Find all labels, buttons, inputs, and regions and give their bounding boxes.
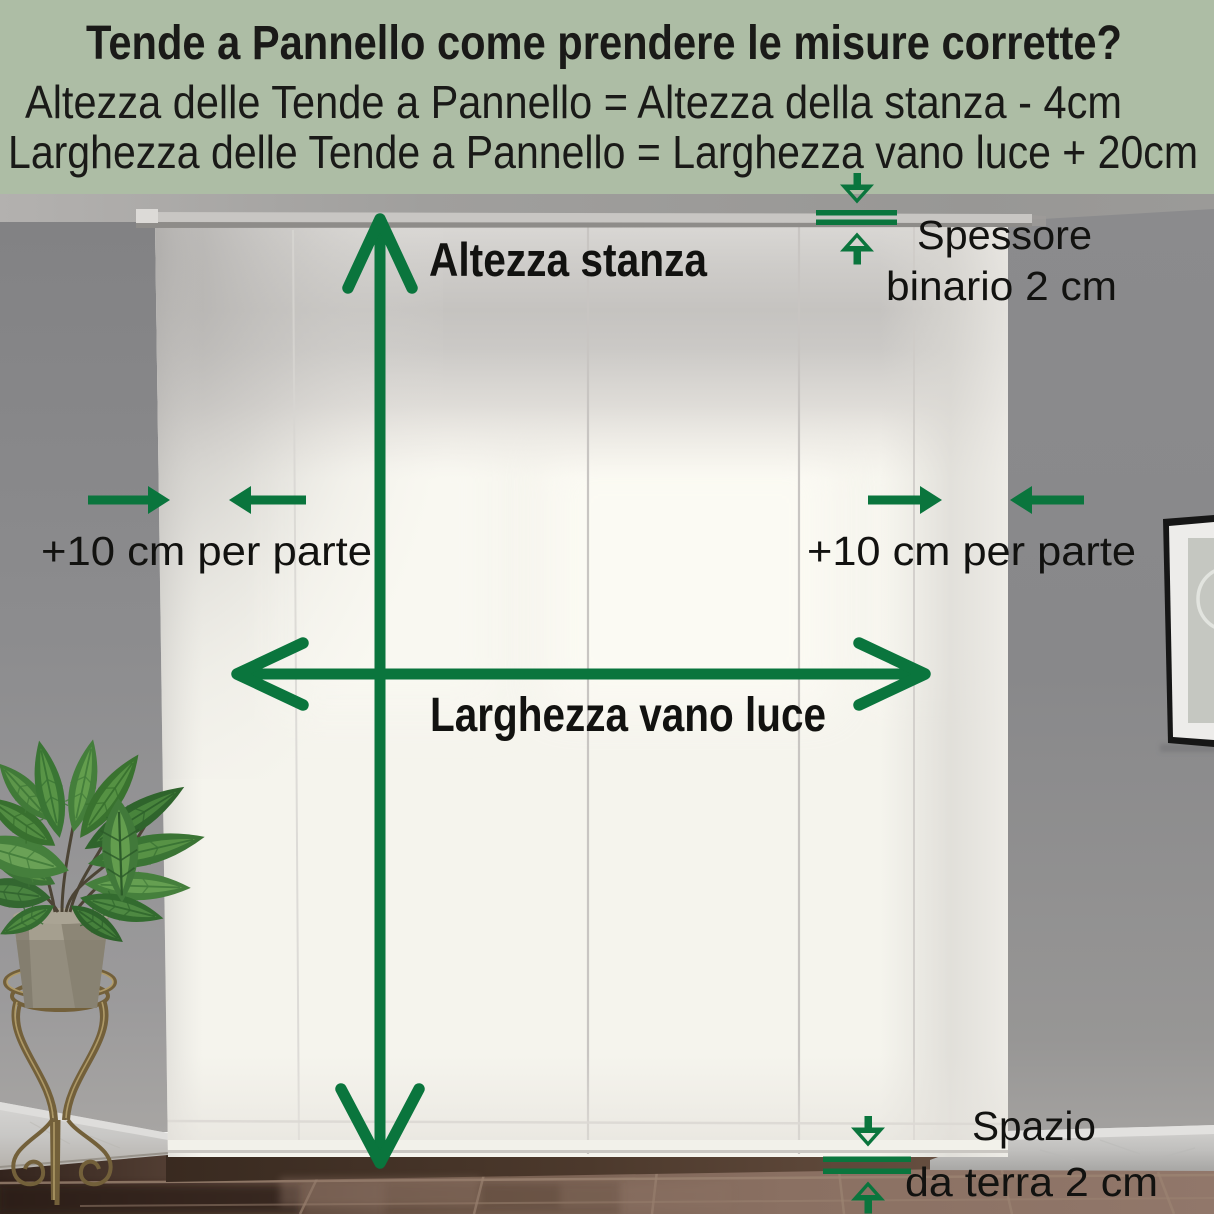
- svg-text:Spazio: Spazio: [972, 1103, 1096, 1149]
- svg-text:Altezza delle Tende a Pannello: Altezza delle Tende a Pannello = Altezza…: [25, 76, 1122, 128]
- svg-text:binario 2 cm: binario 2 cm: [886, 263, 1117, 309]
- svg-text:Tende a Pannello come prendere: Tende a Pannello come prendere le misure…: [86, 17, 1122, 70]
- svg-text:Spessore: Spessore: [917, 212, 1092, 258]
- svg-text:Larghezza delle Tende a Pannel: Larghezza delle Tende a Pannello = Largh…: [8, 126, 1198, 178]
- svg-text:+10 cm per parte: +10 cm per parte: [41, 528, 372, 574]
- svg-text:da terra 2 cm: da terra 2 cm: [905, 1159, 1158, 1205]
- svg-text:Altezza stanza: Altezza stanza: [429, 233, 708, 286]
- svg-text:Larghezza vano luce: Larghezza vano luce: [430, 689, 826, 742]
- svg-text:+10 cm per parte: +10 cm per parte: [807, 528, 1136, 574]
